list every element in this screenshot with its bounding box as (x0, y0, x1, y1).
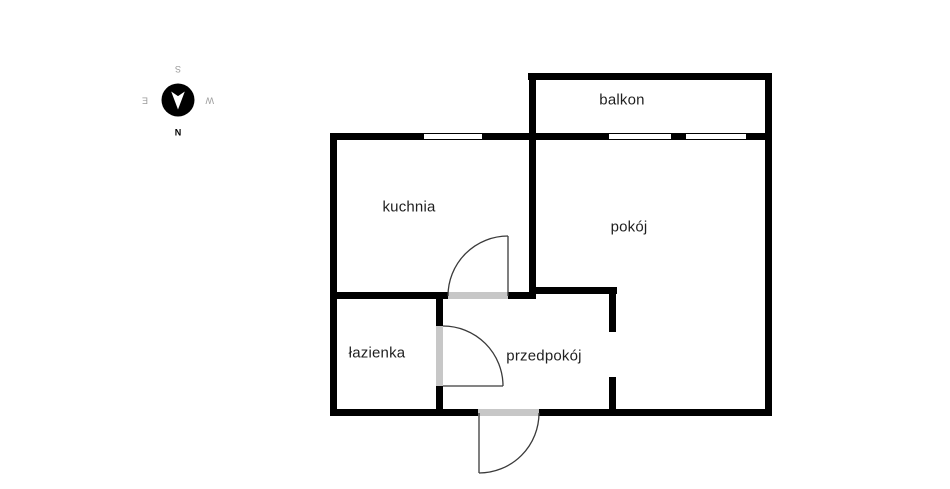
compass-north-label: N (175, 127, 182, 136)
wall-room-hall-divider-lower (609, 377, 616, 416)
entrance-door-threshold (478, 409, 539, 416)
compass-rose: N E S W (142, 64, 214, 136)
entrance-door-arc (479, 413, 539, 473)
room-label-pokoj: pokój (611, 219, 648, 236)
wall-room-hall-divider-upper (609, 287, 616, 332)
wall-balcony-left-and-kitchen-room-divider (529, 73, 536, 299)
floor-plan: N E S W balkon kuchnia pokój łazie (0, 0, 950, 489)
room-window-1 (608, 133, 672, 140)
wall-bathroom-hall-divider-lower (436, 386, 443, 416)
compass-south-label: S (175, 64, 181, 73)
room-label-lazienka: łazienka (349, 345, 406, 362)
kitchen-window (423, 133, 483, 140)
wall-balcony-top (528, 73, 772, 80)
bathroom-door-arc (443, 326, 503, 386)
wall-kitchen-bottom-right (508, 292, 536, 299)
wall-bathroom-hall-divider-upper (436, 292, 443, 326)
kitchen-door-threshold (448, 292, 508, 299)
compass-east-label: E (142, 96, 148, 105)
room-label-kuchnia: kuchnia (382, 199, 435, 216)
wall-kitchen-bottom-left (330, 292, 448, 299)
wall-right (765, 73, 772, 416)
room-label-balkon: balkon (599, 92, 644, 109)
wall-room-bottom (536, 287, 617, 294)
bathroom-door-threshold (436, 326, 443, 386)
room-label-przedpokoj: przedpokój (506, 348, 581, 365)
wall-left (330, 133, 337, 416)
kitchen-door-arc (448, 236, 508, 296)
room-window-2 (685, 133, 747, 140)
wall-bottom (330, 409, 772, 416)
compass-arrow-icon (167, 89, 190, 112)
compass-west-label: W (206, 96, 215, 105)
